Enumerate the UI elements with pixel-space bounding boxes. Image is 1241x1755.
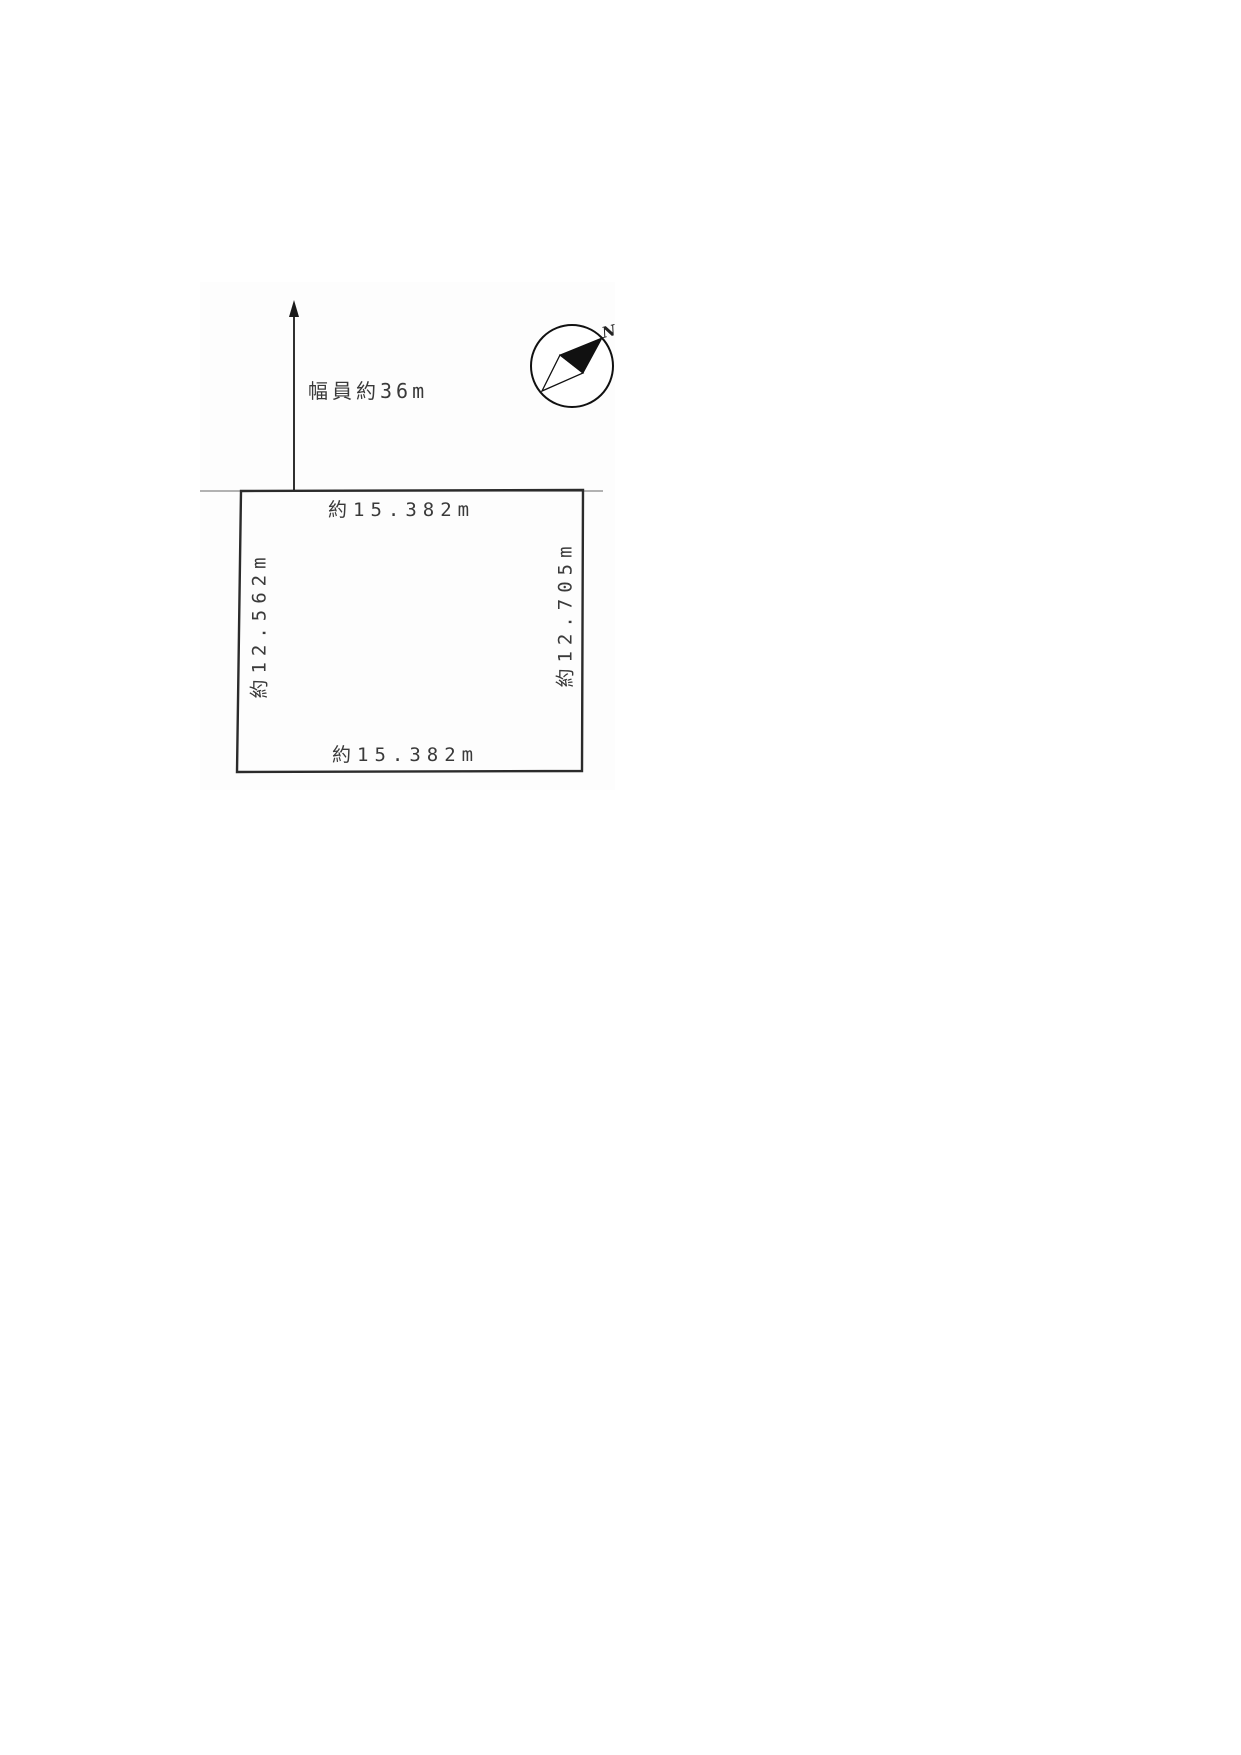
road-width-label: 幅員約36m	[308, 381, 428, 401]
road-direction-up-arrow-icon	[289, 300, 299, 490]
left-dimension-label: 約12.562m	[251, 551, 270, 698]
plot-boundary	[237, 490, 583, 772]
compass-north-label: N	[601, 323, 618, 341]
arrow-head	[289, 300, 299, 317]
right-dimension-label: 約12.705m	[557, 540, 576, 687]
bottom-dimension-label: 約15.382m	[332, 746, 479, 765]
compass-icon	[531, 325, 613, 407]
top-dimension-label: 約15.382m	[328, 501, 475, 520]
survey-drawing-page: 幅員約36m N 約15.382m 約15.382m 約12.562m 約12.…	[0, 0, 1241, 1755]
plot-drawing	[0, 0, 1241, 1755]
